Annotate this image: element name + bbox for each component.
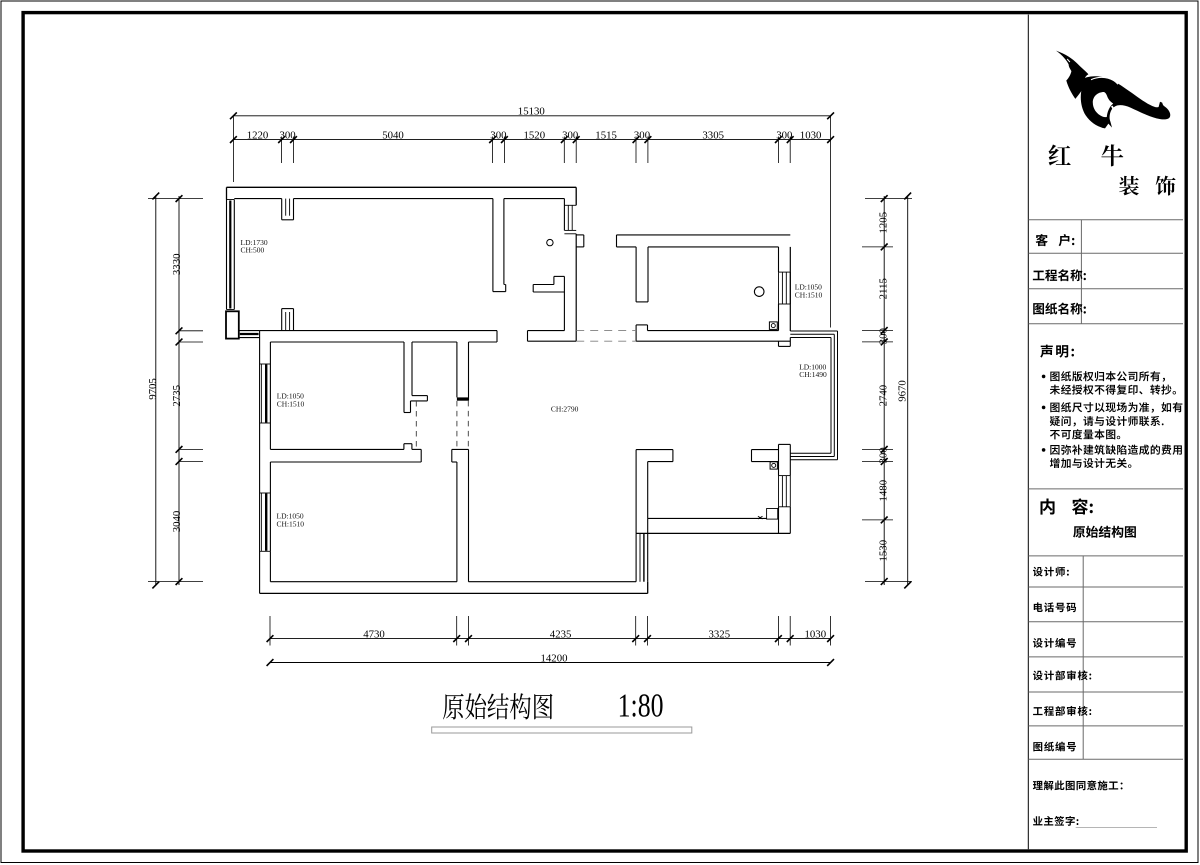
svg-text:1:80: 1:80 xyxy=(618,686,664,724)
svg-text:1030: 1030 xyxy=(800,129,822,141)
svg-text:300: 300 xyxy=(776,129,792,141)
svg-text:2115: 2115 xyxy=(877,278,889,299)
svg-text:1480: 1480 xyxy=(877,480,889,502)
svg-text:5040: 5040 xyxy=(382,129,404,141)
svg-text:3325: 3325 xyxy=(709,628,731,640)
svg-text:9670: 9670 xyxy=(897,380,909,402)
svg-text:CH:1510: CH:1510 xyxy=(795,290,823,299)
svg-text:4235: 4235 xyxy=(550,628,572,640)
svg-text:3305: 3305 xyxy=(702,129,724,141)
svg-text:14200: 14200 xyxy=(541,652,568,664)
svg-text:1220: 1220 xyxy=(247,129,269,141)
svg-text:1530: 1530 xyxy=(877,540,889,562)
svg-text:300: 300 xyxy=(877,447,889,463)
svg-text:1520: 1520 xyxy=(524,129,546,141)
svg-text:2740: 2740 xyxy=(877,385,889,407)
svg-text:9705: 9705 xyxy=(147,378,159,400)
svg-text:1205: 1205 xyxy=(877,212,889,234)
svg-text:3330: 3330 xyxy=(171,254,183,276)
svg-text:2735: 2735 xyxy=(171,385,183,407)
svg-text:300: 300 xyxy=(279,129,295,141)
svg-text:1030: 1030 xyxy=(805,628,827,640)
svg-text:CH:500: CH:500 xyxy=(241,246,265,255)
svg-text:4730: 4730 xyxy=(363,628,385,640)
svg-text:3040: 3040 xyxy=(171,511,183,533)
svg-text:15130: 15130 xyxy=(518,106,545,118)
svg-text:CH:1490: CH:1490 xyxy=(799,370,827,379)
svg-text:CH:1510: CH:1510 xyxy=(277,399,305,408)
svg-text:CH:1510: CH:1510 xyxy=(277,519,305,528)
svg-text:300: 300 xyxy=(562,129,578,141)
svg-text:CH:2790: CH:2790 xyxy=(551,404,579,413)
svg-text:300: 300 xyxy=(877,328,889,344)
svg-text:300: 300 xyxy=(634,129,650,141)
svg-text:300: 300 xyxy=(490,129,506,141)
svg-text:1515: 1515 xyxy=(595,129,617,141)
